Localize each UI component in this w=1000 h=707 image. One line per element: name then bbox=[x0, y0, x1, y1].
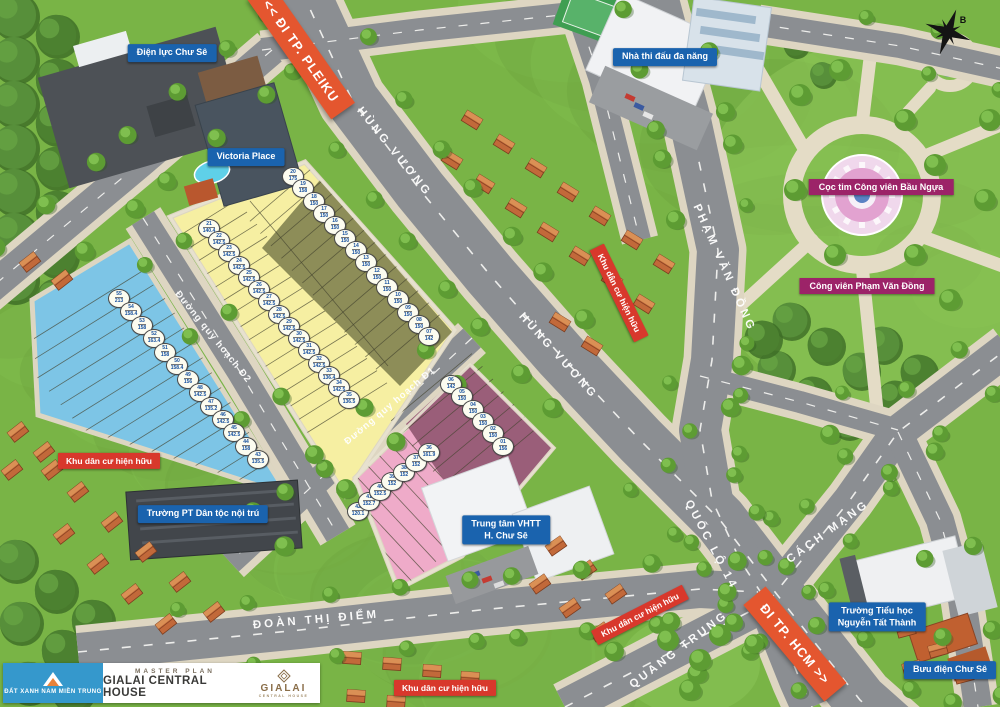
legend-bar: ĐẤT XANH NAM MIỀN TRUNG MASTER PLAN GIAL… bbox=[3, 663, 320, 703]
brand-sub: CENTRAL HOUSE bbox=[259, 694, 309, 698]
plan-kicker: MASTER PLAN bbox=[135, 668, 215, 675]
developer-name: ĐẤT XANH NAM MIỀN TRUNG bbox=[4, 689, 102, 695]
master-plan-map: Điện lực Chư SêVictoria PlaceNhà thi đấu… bbox=[0, 0, 1000, 707]
developer-triangle-icon bbox=[42, 671, 64, 687]
plan-title-box: MASTER PLAN GIALAI CENTRAL HOUSE bbox=[103, 663, 247, 703]
brand-name: GIALAI bbox=[261, 683, 307, 694]
developer-logo-box: ĐẤT XANH NAM MIỀN TRUNG bbox=[3, 663, 103, 703]
brand-diamond-icon bbox=[277, 669, 291, 683]
plan-title: GIALAI CENTRAL HOUSE bbox=[103, 675, 247, 699]
brand-logo-box: GIALAI CENTRAL HOUSE bbox=[247, 663, 320, 703]
map-artwork bbox=[0, 0, 1000, 707]
